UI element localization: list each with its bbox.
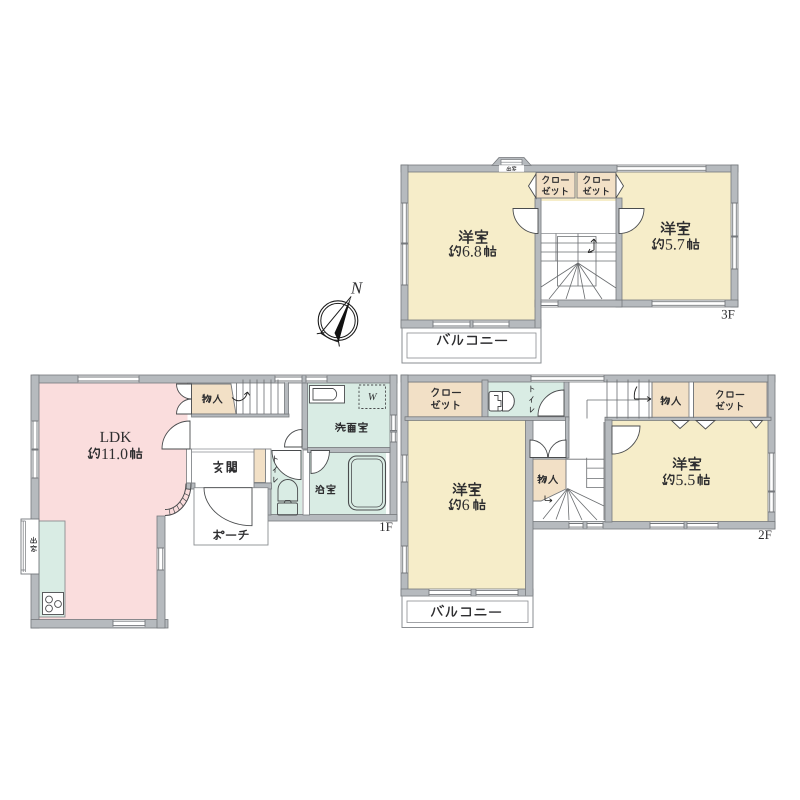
svg-text:5.7: 5.7 xyxy=(665,237,685,254)
svg-text:2F: 2F xyxy=(758,527,772,542)
svg-text:11.0: 11.0 xyxy=(101,446,128,463)
svg-text:N: N xyxy=(350,279,364,298)
svg-text:W: W xyxy=(368,392,378,403)
svg-text:3F: 3F xyxy=(721,307,735,322)
svg-text:LDK: LDK xyxy=(100,429,133,446)
svg-text:5.5: 5.5 xyxy=(676,472,696,489)
svg-text:1F: 1F xyxy=(379,519,393,534)
svg-text:6.8: 6.8 xyxy=(462,244,482,261)
svg-text:6: 6 xyxy=(462,497,470,514)
